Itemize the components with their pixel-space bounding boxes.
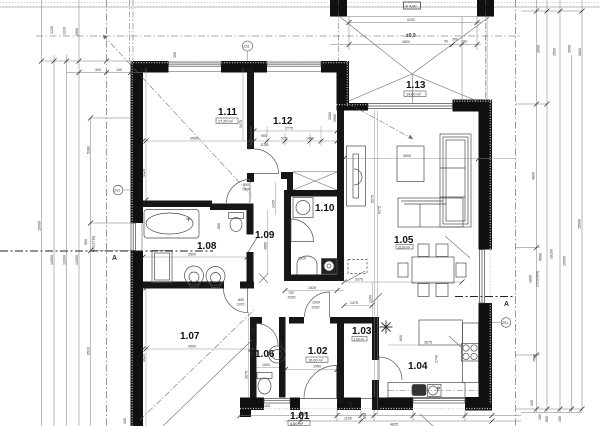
svg-text:150: 150 bbox=[558, 416, 562, 422]
svg-text:1970: 1970 bbox=[237, 303, 245, 307]
svg-text:1.11: 1.11 bbox=[218, 107, 237, 118]
svg-text:850: 850 bbox=[363, 413, 367, 419]
svg-text:4850: 4850 bbox=[264, 242, 268, 250]
svg-text:1970: 1970 bbox=[242, 188, 250, 192]
svg-text:100: 100 bbox=[264, 404, 270, 408]
svg-text:6520: 6520 bbox=[87, 347, 91, 355]
svg-text:125: 125 bbox=[250, 352, 254, 358]
svg-text:300: 300 bbox=[349, 402, 353, 408]
svg-text:3475: 3475 bbox=[239, 120, 243, 128]
svg-text:300: 300 bbox=[95, 68, 101, 72]
svg-text:1.08: 1.08 bbox=[197, 241, 217, 252]
svg-text:15000: 15000 bbox=[578, 219, 582, 229]
svg-text:3500: 3500 bbox=[188, 345, 196, 349]
svg-text:5675: 5675 bbox=[371, 195, 375, 203]
svg-text:4500: 4500 bbox=[403, 154, 411, 158]
svg-text:1825: 1825 bbox=[308, 286, 316, 290]
svg-text:4825: 4825 bbox=[390, 423, 398, 426]
svg-text:700: 700 bbox=[288, 291, 294, 295]
svg-text:800: 800 bbox=[243, 183, 249, 187]
svg-text:17,20 m²: 17,20 m² bbox=[218, 120, 234, 124]
svg-text:1410(900): 1410(900) bbox=[536, 271, 540, 287]
svg-text:1.04: 1.04 bbox=[408, 361, 428, 372]
svg-text:800: 800 bbox=[217, 223, 221, 229]
svg-text:900: 900 bbox=[84, 239, 88, 245]
svg-text:1,90 m²: 1,90 m² bbox=[354, 337, 365, 341]
svg-text:2020: 2020 bbox=[261, 143, 269, 147]
svg-text:14,60 m²: 14,60 m² bbox=[406, 93, 422, 97]
svg-text:600: 600 bbox=[251, 328, 255, 334]
svg-text:ZS1: ZS1 bbox=[243, 45, 249, 49]
svg-text:1800: 1800 bbox=[529, 275, 533, 283]
svg-text:2740: 2740 bbox=[435, 355, 439, 363]
svg-text:3500: 3500 bbox=[568, 45, 572, 53]
svg-text:3500: 3500 bbox=[188, 253, 196, 257]
svg-text:1010: 1010 bbox=[298, 257, 306, 261]
svg-text:±0,0: ±0,0 bbox=[406, 33, 416, 39]
svg-text:1.03: 1.03 bbox=[352, 326, 372, 337]
svg-text:1.10: 1.10 bbox=[315, 203, 335, 214]
svg-text:12800: 12800 bbox=[50, 255, 54, 265]
svg-text:300: 300 bbox=[530, 400, 534, 406]
svg-text:7500: 7500 bbox=[533, 354, 537, 362]
svg-text:1.02: 1.02 bbox=[308, 346, 328, 357]
svg-text:900: 900 bbox=[261, 134, 267, 138]
svg-text:3500: 3500 bbox=[553, 48, 557, 56]
svg-text:10500: 10500 bbox=[563, 256, 567, 266]
svg-text:10100: 10100 bbox=[550, 249, 554, 259]
svg-text:100: 100 bbox=[116, 68, 122, 72]
svg-text:3600: 3600 bbox=[578, 48, 582, 56]
svg-text:1425: 1425 bbox=[272, 200, 276, 208]
svg-text:1475: 1475 bbox=[350, 301, 358, 305]
svg-text:9500: 9500 bbox=[539, 253, 543, 261]
svg-text:2220: 2220 bbox=[50, 26, 54, 34]
svg-text:A: A bbox=[504, 301, 509, 308]
svg-text:1.12: 1.12 bbox=[273, 116, 293, 127]
svg-text:300: 300 bbox=[345, 95, 349, 101]
svg-text:12000: 12000 bbox=[75, 255, 79, 265]
svg-text:4425: 4425 bbox=[142, 169, 146, 177]
svg-text:100: 100 bbox=[461, 40, 467, 44]
svg-text:3675: 3675 bbox=[245, 371, 249, 379]
svg-text:2600: 2600 bbox=[279, 340, 283, 348]
svg-text:1200: 1200 bbox=[369, 295, 373, 303]
svg-text:6275: 6275 bbox=[378, 206, 382, 214]
svg-text:E 4,60: E 4,60 bbox=[406, 4, 417, 8]
svg-text:15000: 15000 bbox=[38, 221, 42, 231]
svg-text:1450: 1450 bbox=[313, 365, 321, 369]
svg-text:575: 575 bbox=[281, 137, 287, 141]
svg-text:1100: 1100 bbox=[344, 417, 352, 421]
svg-text:3500: 3500 bbox=[537, 45, 541, 53]
svg-text:2220: 2220 bbox=[63, 27, 67, 35]
svg-text:1450: 1450 bbox=[306, 137, 314, 141]
svg-text:10,00 m²: 10,00 m² bbox=[308, 359, 324, 363]
svg-text:ZS1: ZS1 bbox=[502, 321, 508, 325]
svg-text:100: 100 bbox=[538, 414, 542, 420]
svg-text:1000: 1000 bbox=[312, 301, 320, 305]
svg-text:1.07: 1.07 bbox=[180, 331, 200, 342]
svg-text:600: 600 bbox=[399, 335, 403, 341]
svg-text:15,00 m²: 15,00 m² bbox=[398, 245, 411, 249]
svg-text:1000: 1000 bbox=[262, 363, 270, 367]
svg-text:4800: 4800 bbox=[532, 172, 536, 180]
svg-text:3900: 3900 bbox=[333, 114, 337, 122]
svg-text:1.09: 1.09 bbox=[255, 230, 275, 241]
svg-text:A: A bbox=[112, 255, 117, 262]
svg-text:1.06: 1.06 bbox=[255, 349, 275, 360]
svg-text:100: 100 bbox=[173, 52, 177, 58]
svg-text:ZS1: ZS1 bbox=[114, 189, 120, 193]
svg-text:2775: 2775 bbox=[285, 127, 293, 131]
svg-text:2020: 2020 bbox=[288, 296, 296, 300]
svg-text:5250: 5250 bbox=[407, 18, 415, 22]
svg-text:300: 300 bbox=[452, 38, 458, 42]
svg-text:900: 900 bbox=[545, 416, 549, 422]
svg-text:4800: 4800 bbox=[402, 40, 410, 44]
svg-text:50: 50 bbox=[444, 40, 448, 44]
svg-text:4625: 4625 bbox=[142, 354, 146, 362]
svg-text:3300: 3300 bbox=[328, 112, 332, 120]
svg-text:12600: 12600 bbox=[63, 255, 67, 265]
svg-text:1.13: 1.13 bbox=[406, 80, 426, 91]
svg-text:4,60 m²: 4,60 m² bbox=[290, 422, 304, 426]
svg-text:600(1710): 600(1710) bbox=[92, 236, 96, 252]
svg-text:1900: 1900 bbox=[75, 28, 79, 36]
svg-text:5380: 5380 bbox=[87, 146, 91, 154]
svg-text:3500: 3500 bbox=[190, 137, 198, 141]
svg-text:3575: 3575 bbox=[424, 341, 432, 345]
svg-text:2020: 2020 bbox=[312, 306, 320, 310]
svg-text:800: 800 bbox=[238, 298, 244, 302]
svg-text:100: 100 bbox=[123, 418, 127, 424]
svg-text:120: 120 bbox=[248, 144, 252, 150]
svg-text:3375: 3375 bbox=[355, 278, 363, 282]
